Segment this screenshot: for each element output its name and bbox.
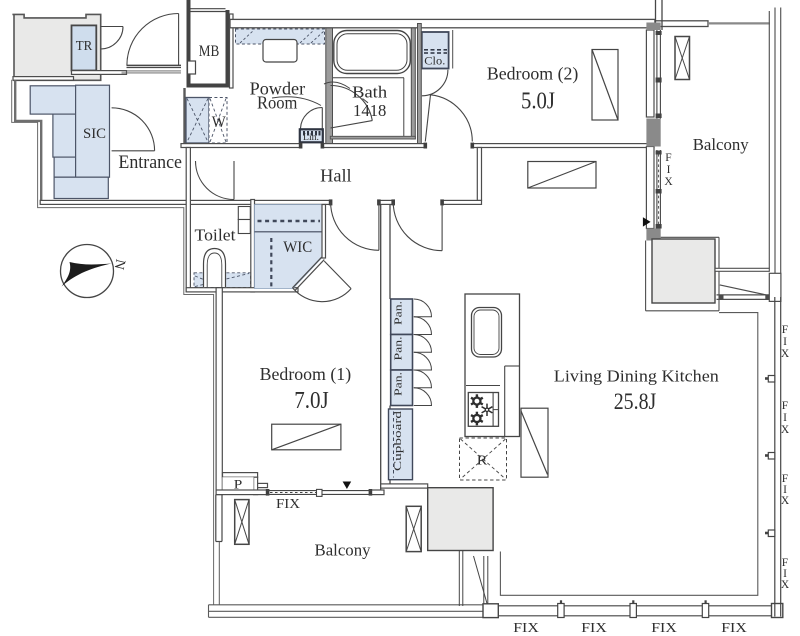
svg-text:1418: 1418 (353, 101, 386, 120)
svg-text:X: X (781, 579, 790, 591)
svg-text:W: W (212, 114, 226, 131)
svg-text:FIX: FIX (721, 621, 747, 636)
svg-text:Bedroom (2): Bedroom (2) (487, 64, 579, 84)
svg-text:F: F (665, 152, 671, 164)
svg-text:7.0J: 7.0J (294, 388, 329, 414)
svg-text:FIX: FIX (513, 621, 539, 636)
svg-text:Toilet: Toilet (195, 226, 236, 245)
svg-text:Balcony: Balcony (693, 135, 749, 154)
svg-text:X: X (664, 176, 673, 188)
svg-text:Room: Room (257, 93, 298, 113)
svg-text:Living Dining Kitchen: Living Dining Kitchen (554, 367, 720, 386)
svg-text:I: I (667, 164, 671, 176)
svg-text:I: I (783, 336, 787, 348)
svg-text:F: F (782, 324, 788, 336)
svg-text:Balcony: Balcony (315, 541, 371, 560)
svg-text:25.8J: 25.8J (614, 389, 657, 414)
svg-text:TR: TR (76, 39, 93, 54)
svg-text:Pan.: Pan. (394, 301, 405, 325)
svg-text:Pan.: Pan. (394, 372, 405, 396)
svg-text:X: X (781, 495, 790, 507)
svg-text:Pan.: Pan. (394, 337, 405, 361)
svg-text:F: F (782, 400, 788, 412)
svg-text:R: R (477, 454, 488, 469)
svg-text:X: X (781, 348, 790, 360)
svg-text:Bedroom (1): Bedroom (1) (260, 364, 352, 384)
svg-text:X: X (781, 424, 790, 436)
svg-text:Hall: Hall (320, 165, 352, 185)
svg-text:Lin.: Lin. (303, 132, 319, 142)
svg-text:Entrance: Entrance (118, 152, 182, 173)
svg-text:SIC: SIC (83, 126, 106, 142)
svg-text:FIX: FIX (651, 621, 677, 636)
svg-text:Bath: Bath (352, 82, 388, 101)
svg-text:5.0J: 5.0J (521, 88, 555, 114)
svg-text:MB: MB (199, 43, 220, 60)
svg-text:WIC: WIC (283, 239, 312, 256)
svg-text:FIX: FIX (581, 621, 607, 636)
svg-text:Clo.: Clo. (424, 55, 445, 67)
svg-text:Cupboard: Cupboard (392, 410, 404, 471)
svg-text:I: I (783, 412, 787, 424)
svg-text:FIX: FIX (276, 496, 300, 511)
